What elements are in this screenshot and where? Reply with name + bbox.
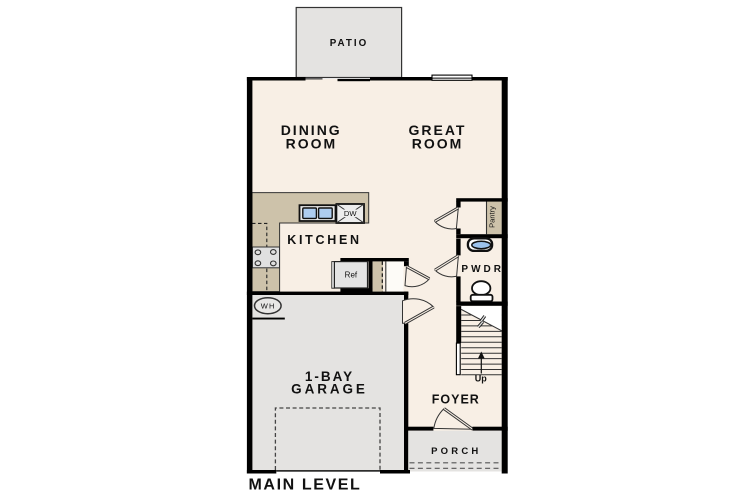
svg-text:Ref: Ref [345, 270, 358, 279]
svg-text:WH: WH [261, 301, 276, 310]
svg-text:PWDR: PWDR [461, 264, 504, 275]
svg-text:ROOM: ROOM [286, 135, 338, 151]
svg-text:Up: Up [475, 374, 487, 384]
svg-text:PATIO: PATIO [330, 38, 368, 49]
svg-text:KITCHEN: KITCHEN [287, 233, 361, 247]
svg-text:MAIN LEVEL: MAIN LEVEL [249, 476, 362, 493]
svg-text:Pantry: Pantry [487, 206, 496, 228]
svg-text:DW: DW [344, 209, 357, 218]
svg-text:ROOM: ROOM [412, 135, 464, 151]
svg-text:GARAGE: GARAGE [291, 381, 368, 396]
svg-text:PORCH: PORCH [431, 446, 481, 457]
svg-text:FOYER: FOYER [432, 393, 480, 407]
